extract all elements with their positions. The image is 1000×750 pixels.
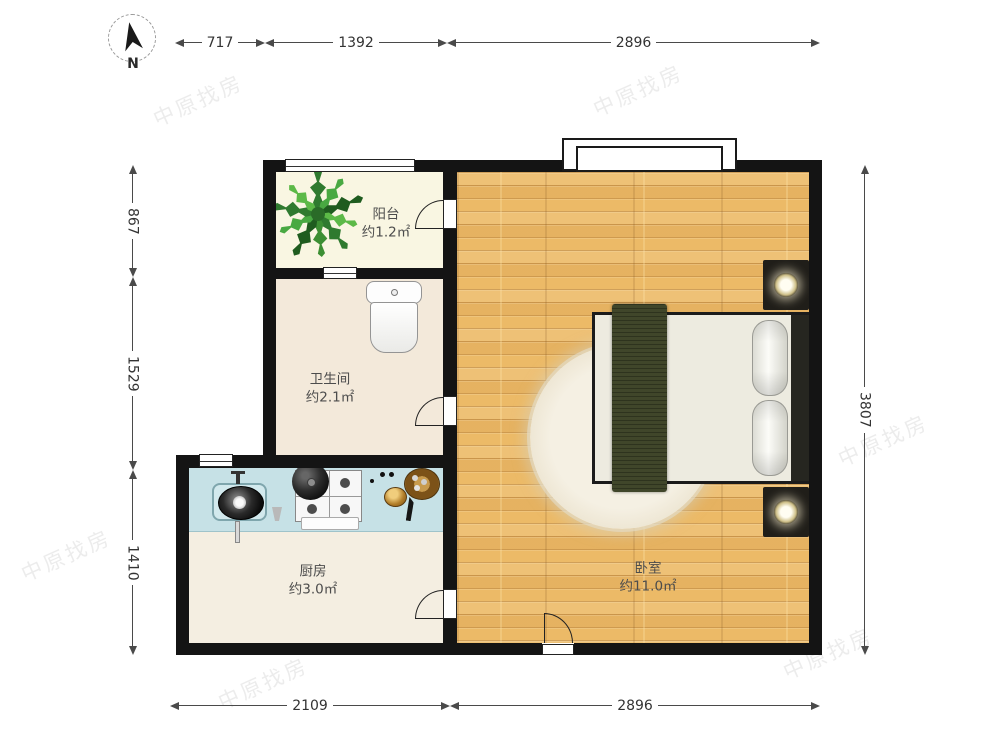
wall-right xyxy=(809,160,822,655)
watermark: 中原找房 xyxy=(588,57,688,123)
dimension-value: 867 xyxy=(126,203,140,240)
burner xyxy=(340,504,350,514)
washing-machine-body xyxy=(370,302,418,353)
dimension-top-1: 717 xyxy=(175,38,265,47)
compass xyxy=(108,14,156,62)
pillow xyxy=(752,320,788,396)
floorplan-canvas: 中原找房 中原找房 中原找房 中原找房 中原找房 中原找房 中原找房 中原找房 … xyxy=(0,0,1000,750)
dimension-left-3: 1410 xyxy=(128,470,137,655)
dimension-value: 1410 xyxy=(126,540,140,586)
condiment-dot xyxy=(389,472,394,477)
plate-icon xyxy=(404,468,440,500)
bowl-icon xyxy=(384,487,407,507)
dimension-top-3: 2896 xyxy=(447,38,820,47)
wall-balcony-bath-divider xyxy=(263,268,457,279)
plate-food xyxy=(412,475,418,481)
plant-icon xyxy=(266,164,370,264)
dimension-value: 2896 xyxy=(612,699,658,713)
room-label-bathroom: 卫生间 约2.1㎡ xyxy=(306,371,354,406)
room-area: 约11.0㎡ xyxy=(619,578,676,596)
balcony-window xyxy=(285,159,415,172)
room-area: 约2.1㎡ xyxy=(306,389,354,407)
wall-bottom-right xyxy=(574,643,822,655)
room-label-balcony: 阳台 约1.2㎡ xyxy=(362,206,410,241)
lamp-icon xyxy=(774,273,798,297)
condiment-dot xyxy=(380,472,385,477)
wall-left-upper xyxy=(263,160,276,468)
wall-bottom-left xyxy=(176,643,542,655)
dimension-bottom-2: 2896 xyxy=(450,701,820,710)
watermark: 中原找房 xyxy=(148,67,248,133)
lamp-icon xyxy=(774,500,798,524)
balcony-door xyxy=(443,199,457,229)
burner xyxy=(307,504,317,514)
condiment-dot xyxy=(370,479,374,483)
room-name: 卫生间 xyxy=(306,371,354,389)
faucet-icon xyxy=(236,473,240,484)
wall-mid-seg1 xyxy=(443,160,457,199)
dimension-value: 2896 xyxy=(611,36,657,50)
dimension-value: 2109 xyxy=(287,699,333,713)
pillow xyxy=(752,400,788,476)
dimension-value: 3807 xyxy=(858,387,872,433)
room-label-kitchen: 厨房 约3.0㎡ xyxy=(289,563,337,598)
dimension-left-2: 1529 xyxy=(128,277,137,470)
dimension-bottom-1: 2109 xyxy=(170,701,450,710)
burner xyxy=(340,478,350,488)
bed-blanket xyxy=(612,304,667,492)
entrance-door xyxy=(542,644,574,655)
utensil-tray xyxy=(301,517,359,530)
bay-window-inner xyxy=(576,146,723,172)
room-area: 约3.0㎡ xyxy=(289,581,337,599)
dimension-right-1: 3807 xyxy=(860,165,869,655)
faucet-handle xyxy=(231,471,245,474)
dimension-top-2: 1392 xyxy=(265,38,447,47)
room-label-bedroom: 卧室 约11.0㎡ xyxy=(619,560,676,595)
room-area: 约1.2㎡ xyxy=(362,224,410,242)
kitchen-door xyxy=(443,589,457,619)
pan-handle xyxy=(235,521,240,543)
north-arrow-icon xyxy=(109,15,155,61)
watermark: 中原找房 xyxy=(16,522,116,588)
dimension-value: 1392 xyxy=(333,36,379,50)
washing-machine-knob xyxy=(391,289,398,296)
kitchen-window xyxy=(199,454,233,467)
wall-kitchen-left xyxy=(176,455,189,655)
watermark: 中原找房 xyxy=(833,407,933,473)
room-name: 阳台 xyxy=(362,206,410,224)
room-name: 厨房 xyxy=(289,563,337,581)
dimension-value: 717 xyxy=(202,36,239,50)
dimension-left-1: 867 xyxy=(128,165,137,277)
wok-lid-knob xyxy=(307,478,316,487)
bathroom-door xyxy=(443,396,457,426)
sink-drain xyxy=(233,496,246,509)
wall-mid-seg3 xyxy=(443,426,457,589)
wall-mid-seg4 xyxy=(443,619,457,655)
dimension-value: 1529 xyxy=(126,351,140,397)
room-name: 卧室 xyxy=(619,560,676,578)
compass-north-label: N xyxy=(122,56,144,72)
wall-mid-seg2 xyxy=(443,229,457,396)
bathroom-window xyxy=(323,267,357,279)
bed-headboard xyxy=(791,315,809,481)
